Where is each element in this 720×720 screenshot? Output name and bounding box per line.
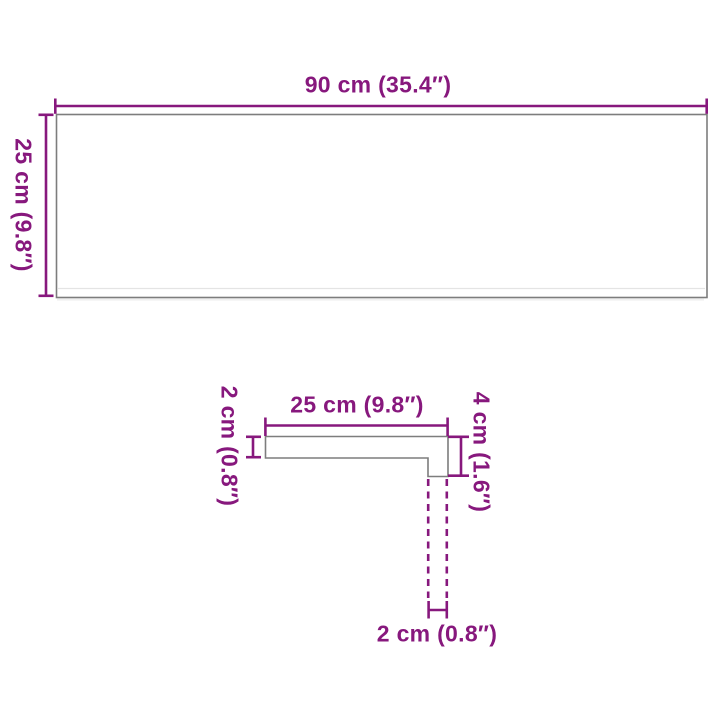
profile-nosing-height-dimension [448, 436, 469, 477]
profile-nosing-width-label: 2 cm (0.8″) [377, 621, 497, 648]
profile-thickness-label: 2 cm (0.8″) [216, 386, 243, 506]
diagram-drawing [0, 0, 720, 720]
nosing-projection-dashes [428, 479, 447, 598]
top-width-label: 90 cm (35.4″) [305, 72, 452, 99]
top-view-board [57, 115, 708, 298]
profile-thickness-dimension [246, 436, 261, 458]
top-width-dimension [55, 99, 708, 114]
profile-depth-dimension [265, 418, 448, 437]
top-view-board-group [57, 115, 708, 300]
profile-nosing-height-label: 4 cm (1.6″) [468, 392, 495, 512]
dimension-diagram: 90 cm (35.4″) 25 cm (9.8″) 25 cm (9.8″) … [0, 0, 720, 720]
profile-view-outline [266, 437, 449, 477]
top-height-label: 25 cm (9.8″) [10, 138, 37, 272]
profile-depth-label: 25 cm (9.8″) [290, 392, 424, 419]
top-height-dimension [39, 114, 54, 297]
profile-nosing-width-dimension [428, 601, 448, 619]
